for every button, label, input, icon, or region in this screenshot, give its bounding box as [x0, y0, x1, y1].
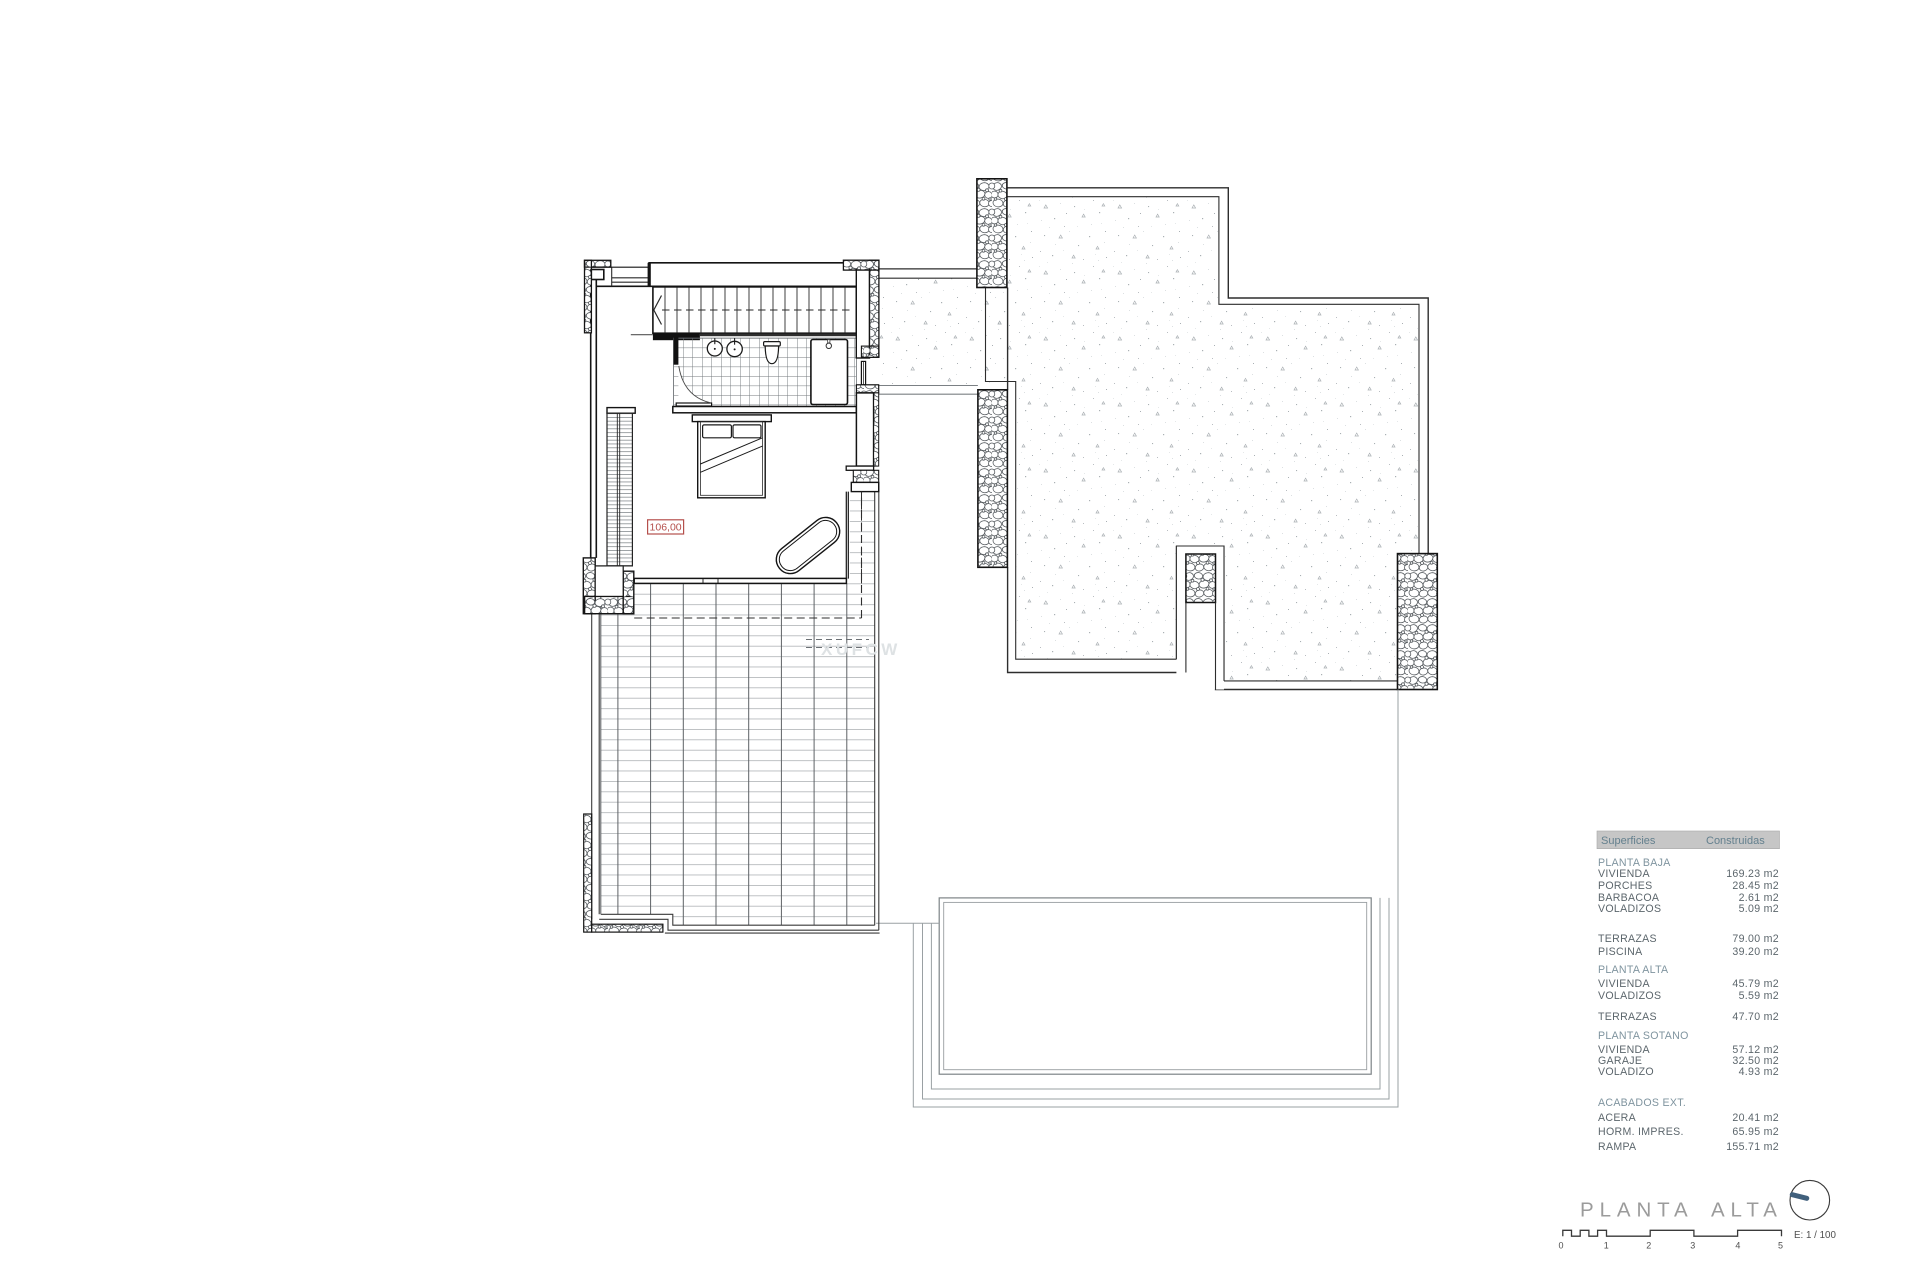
svg-text:47.70 m2: 47.70 m2	[1732, 1011, 1779, 1023]
svg-text:PISCINA: PISCINA	[1598, 946, 1643, 958]
svg-text:VIVIENDA: VIVIENDA	[1598, 978, 1650, 990]
svg-text:4.93 m2: 4.93 m2	[1739, 1066, 1779, 1078]
svg-text:5.59 m2: 5.59 m2	[1739, 990, 1779, 1002]
svg-text:5.09 m2: 5.09 m2	[1739, 903, 1779, 915]
svg-text:45.79 m2: 45.79 m2	[1732, 978, 1779, 990]
svg-text:TERRAZAS: TERRAZAS	[1598, 1011, 1657, 1023]
svg-text:3: 3	[1690, 1241, 1695, 1251]
svg-text:HORM. IMPRES.: HORM. IMPRES.	[1598, 1126, 1684, 1138]
svg-text:ACABADOS EXT.: ACABADOS EXT.	[1598, 1097, 1686, 1109]
svg-text:79.00 m2: 79.00 m2	[1732, 933, 1779, 945]
svg-text:20.41 m2: 20.41 m2	[1732, 1112, 1779, 1124]
svg-text:28.45 m2: 28.45 m2	[1732, 880, 1779, 892]
svg-text:PLANTA ALTA: PLANTA ALTA	[1598, 964, 1669, 976]
svg-text:155.71 m2: 155.71 m2	[1726, 1141, 1779, 1153]
svg-text:RAMPA: RAMPA	[1598, 1141, 1637, 1153]
svg-text:0: 0	[1558, 1241, 1563, 1251]
svg-text:XUFCW: XUFCW	[821, 640, 901, 659]
svg-text:VIVIENDA: VIVIENDA	[1598, 868, 1650, 880]
svg-text:VOLADIZO: VOLADIZO	[1598, 1066, 1654, 1078]
svg-text:PORCHES: PORCHES	[1598, 880, 1653, 892]
svg-text:169.23 m2: 169.23 m2	[1726, 868, 1779, 880]
svg-text:ACERA: ACERA	[1598, 1112, 1637, 1124]
svg-text:PLANTA ALTA: PLANTA ALTA	[1580, 1199, 1783, 1222]
svg-text:VOLADIZOS: VOLADIZOS	[1598, 990, 1661, 1002]
svg-text:2: 2	[1646, 1241, 1651, 1251]
svg-text:Construidas: Construidas	[1706, 835, 1765, 847]
svg-text:5: 5	[1778, 1241, 1783, 1251]
svg-text:39.20 m2: 39.20 m2	[1732, 946, 1779, 958]
svg-text:Superficies: Superficies	[1601, 835, 1656, 847]
svg-text:65.95 m2: 65.95 m2	[1732, 1126, 1779, 1138]
svg-text:TERRAZAS: TERRAZAS	[1598, 933, 1657, 945]
svg-text:VOLADIZOS: VOLADIZOS	[1598, 903, 1661, 915]
svg-text:106,00: 106,00	[650, 522, 682, 534]
svg-text:E: 1 / 100: E: 1 / 100	[1794, 1230, 1836, 1241]
svg-text:1: 1	[1604, 1241, 1609, 1251]
svg-text:4: 4	[1735, 1241, 1740, 1251]
svg-text:PLANTA SOTANO: PLANTA SOTANO	[1598, 1030, 1689, 1042]
